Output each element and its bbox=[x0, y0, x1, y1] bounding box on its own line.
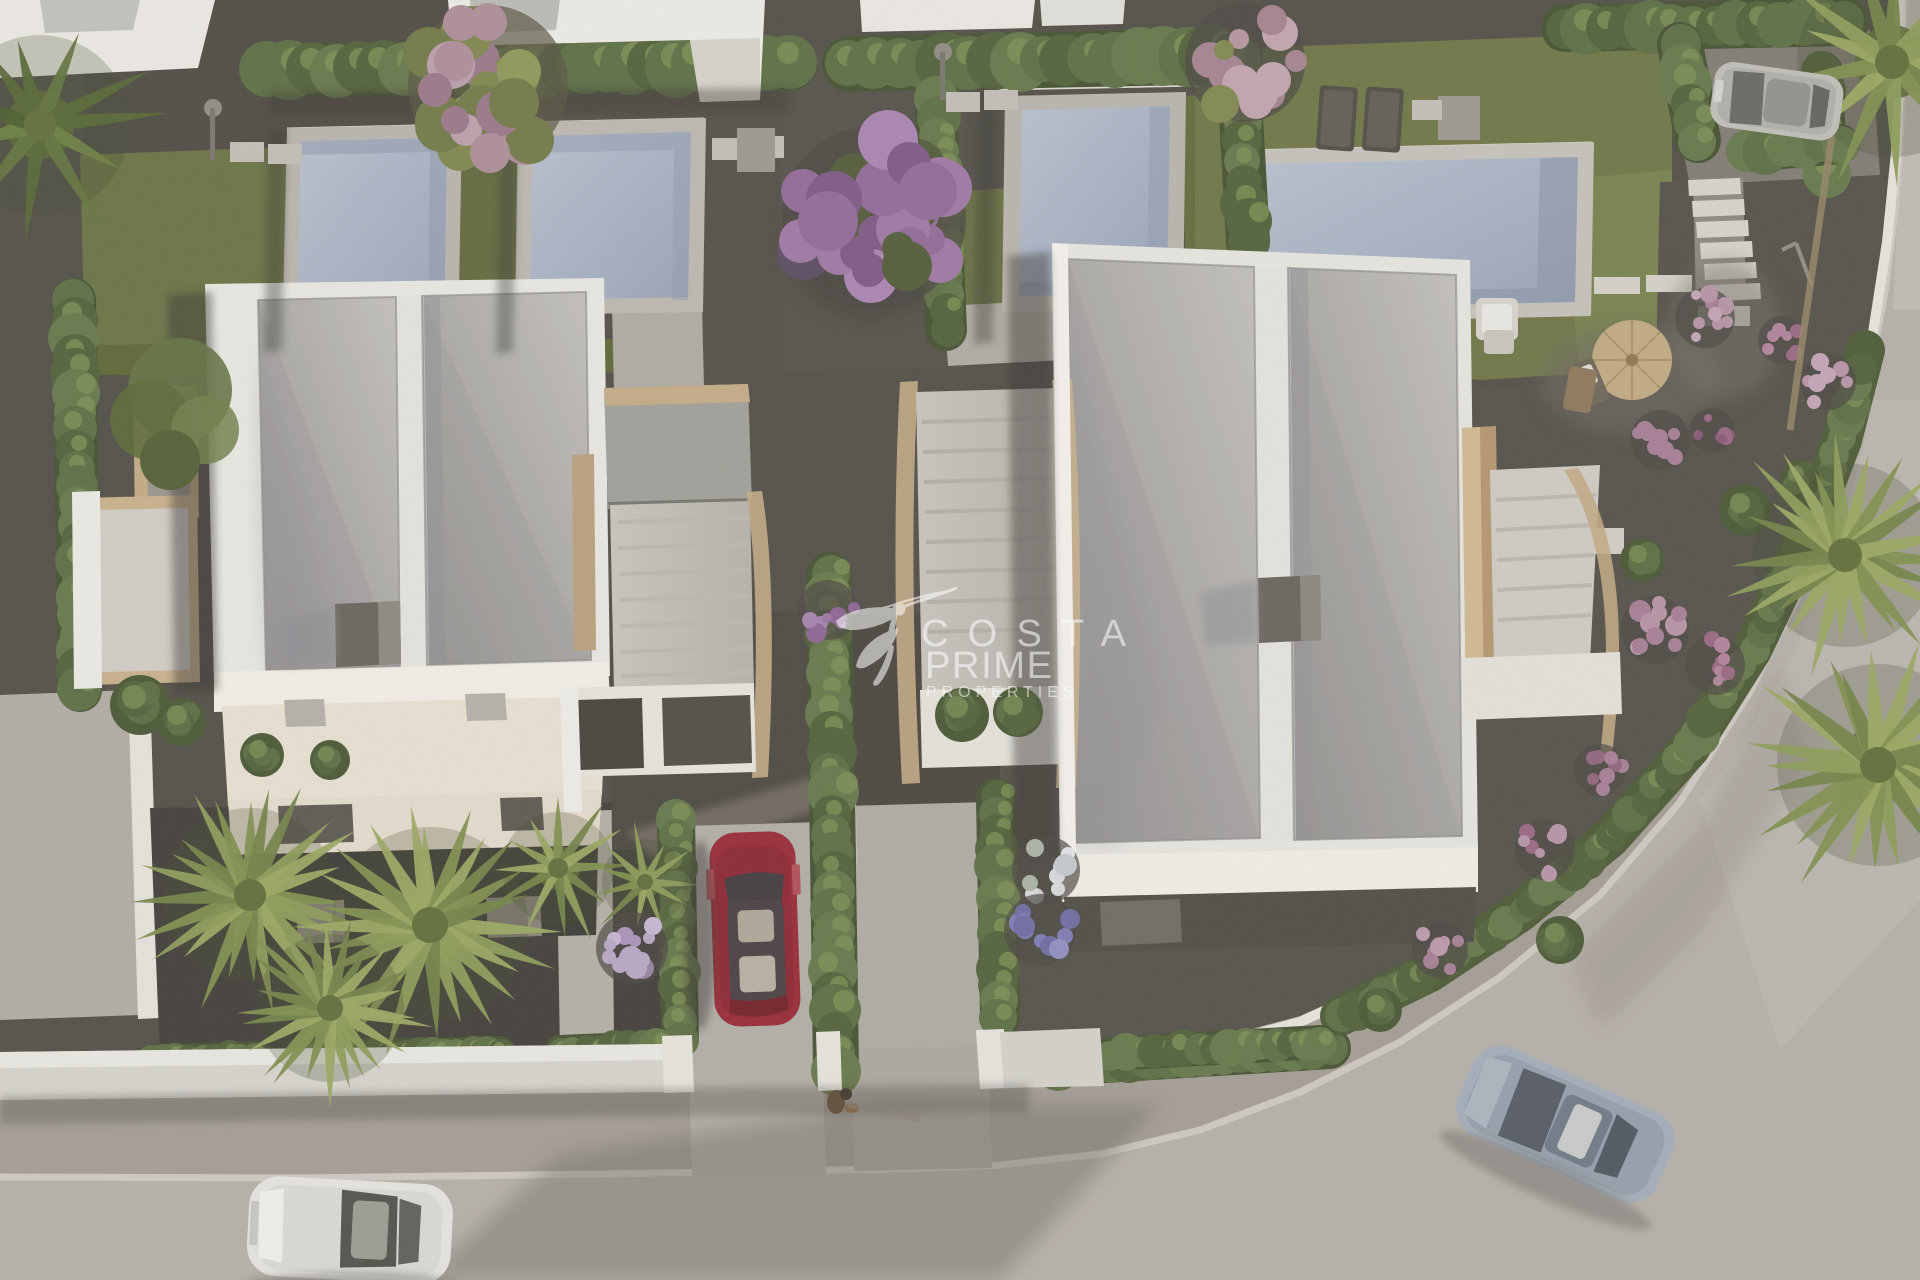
svg-text:PRIME: PRIME bbox=[925, 645, 1059, 687]
svg-text:PROPERTIES: PROPERTIES bbox=[926, 684, 1078, 701]
